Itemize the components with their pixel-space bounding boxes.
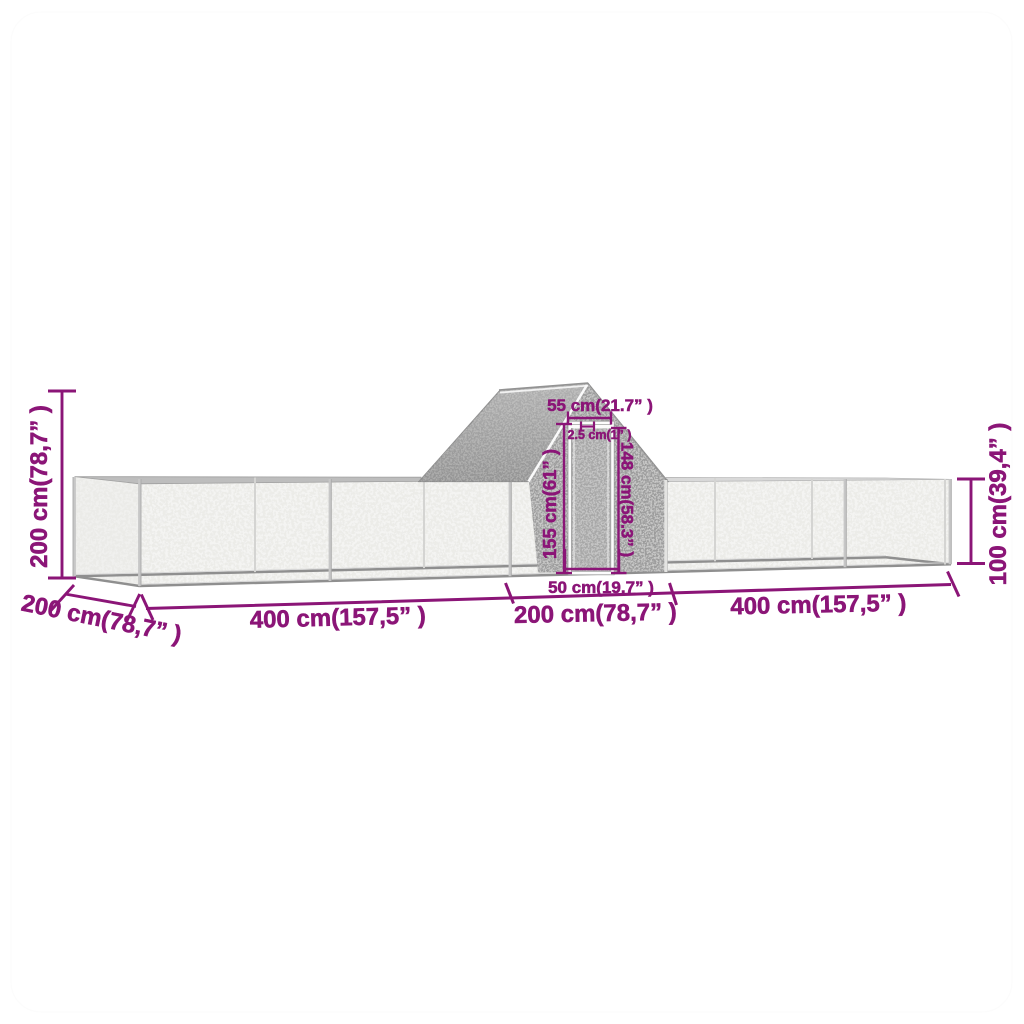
svg-text:50 cm(19.7” ): 50 cm(19.7” ) — [548, 578, 654, 597]
svg-text:200 cm(78,7” ): 200 cm(78,7” ) — [26, 405, 53, 568]
svg-text:200 cm(78,7” ): 200 cm(78,7” ) — [514, 599, 677, 629]
svg-text:148 cm(58.3” ): 148 cm(58.3” ) — [618, 442, 637, 557]
svg-text:55 cm(21.7” ): 55 cm(21.7” ) — [547, 396, 653, 415]
svg-text:400 cm(157,5” ): 400 cm(157,5” ) — [730, 590, 907, 621]
svg-text:2.5 cm(1” ): 2.5 cm(1” ) — [568, 428, 632, 442]
svg-text:155 cm(61” ): 155 cm(61” ) — [539, 449, 560, 559]
svg-text:400 cm(157,5” ): 400 cm(157,5” ) — [249, 602, 426, 634]
svg-text:100 cm(39,4” ): 100 cm(39,4” ) — [985, 423, 1012, 586]
